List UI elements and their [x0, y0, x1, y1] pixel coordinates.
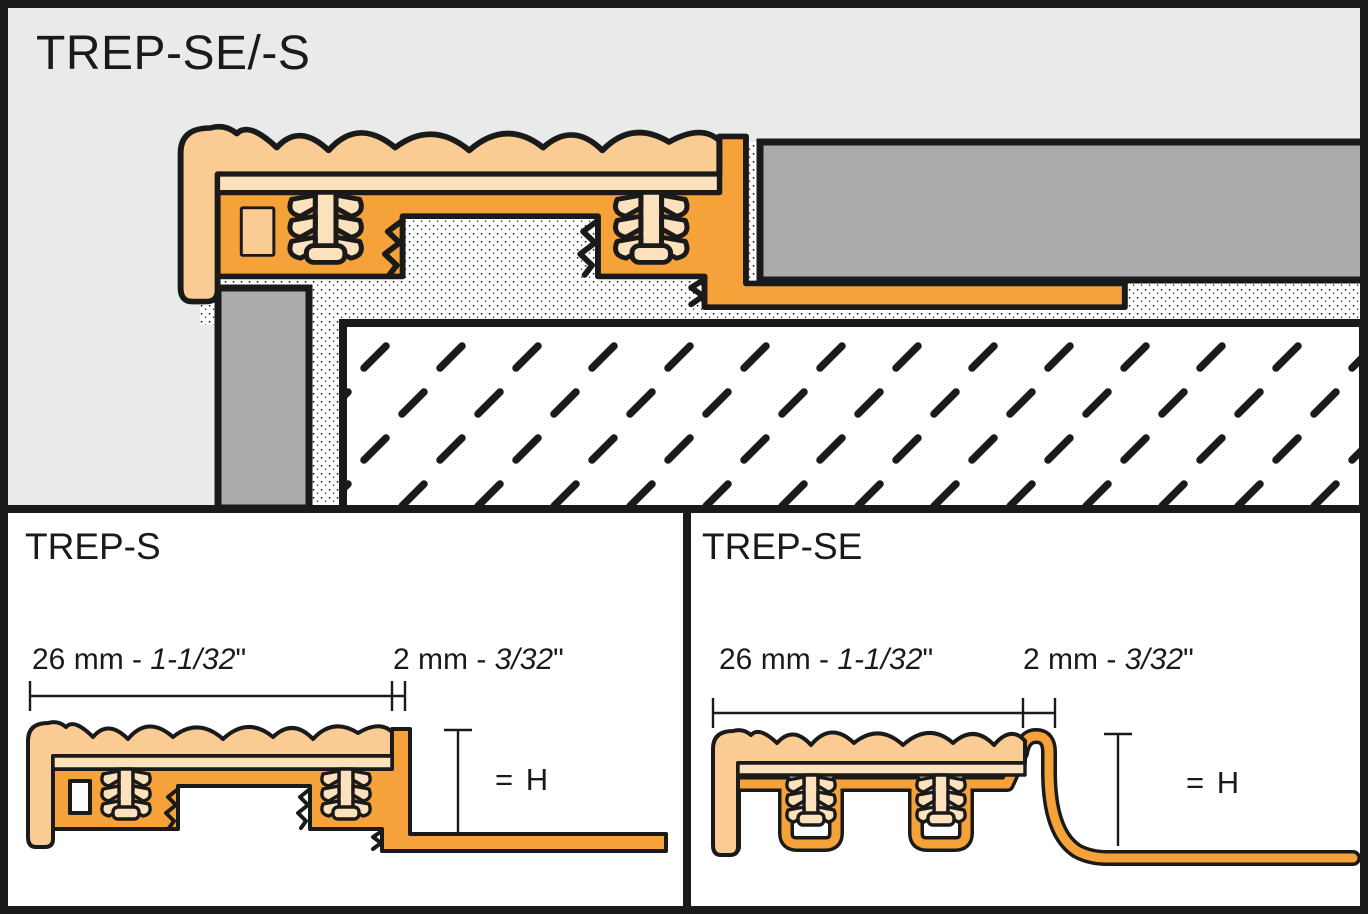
trep-se-edge-dimension-label: 2 mm - 3/32"	[1023, 643, 1194, 676]
insert-base-plate	[218, 174, 720, 192]
insert-base-plate	[53, 756, 392, 769]
concrete-substrate	[343, 323, 1360, 505]
tread-insert	[713, 730, 1025, 855]
trep-se-profile-drawing	[691, 513, 1360, 906]
overview-cross-section-drawing	[8, 8, 1360, 505]
trep-s-width-dimension-label: 26 mm - 1-1/32"	[32, 643, 246, 676]
trep-s-profile-drawing	[8, 513, 683, 906]
trep-se-width-dimension-label: 26 mm - 1-1/32"	[719, 643, 933, 676]
insert-anchor-barb	[616, 192, 687, 262]
insert-anchor-barb	[290, 192, 361, 262]
insert-anchor-barb	[102, 769, 150, 819]
profile-window-insert	[243, 209, 273, 254]
drawing-frame: TREP-SE/-S TREP-S 26 mm - 1-1/32" 2 mm -…	[0, 0, 1368, 914]
insert-anchor-barb	[322, 769, 370, 819]
insert-anchor-barb	[787, 775, 835, 825]
panel-trep-se: TREP-SE 26 mm - 1-1/32" 2 mm - 3/32" = H	[691, 513, 1360, 906]
trep-se-height-label: = H	[1186, 766, 1241, 800]
tread-tile	[760, 142, 1360, 280]
panel-trep-s: TREP-S 26 mm - 1-1/32" 2 mm - 3/32" = H	[8, 513, 683, 906]
mortar-joint-vertical	[309, 288, 343, 505]
trep-se-title: TREP-SE	[702, 527, 862, 568]
profile-cross-section	[28, 722, 666, 851]
trep-s-title: TREP-S	[25, 527, 161, 568]
trep-s-edge-dimension-label: 2 mm - 3/32"	[393, 643, 564, 676]
trep-s-height-label: = H	[495, 763, 550, 797]
insert-base-plate	[738, 763, 1025, 775]
insert-anchor-barb	[917, 775, 965, 825]
page-title: TREP-SE/-S	[36, 28, 310, 81]
panel-overview: TREP-SE/-S	[8, 8, 1360, 505]
riser-tile	[218, 288, 309, 505]
